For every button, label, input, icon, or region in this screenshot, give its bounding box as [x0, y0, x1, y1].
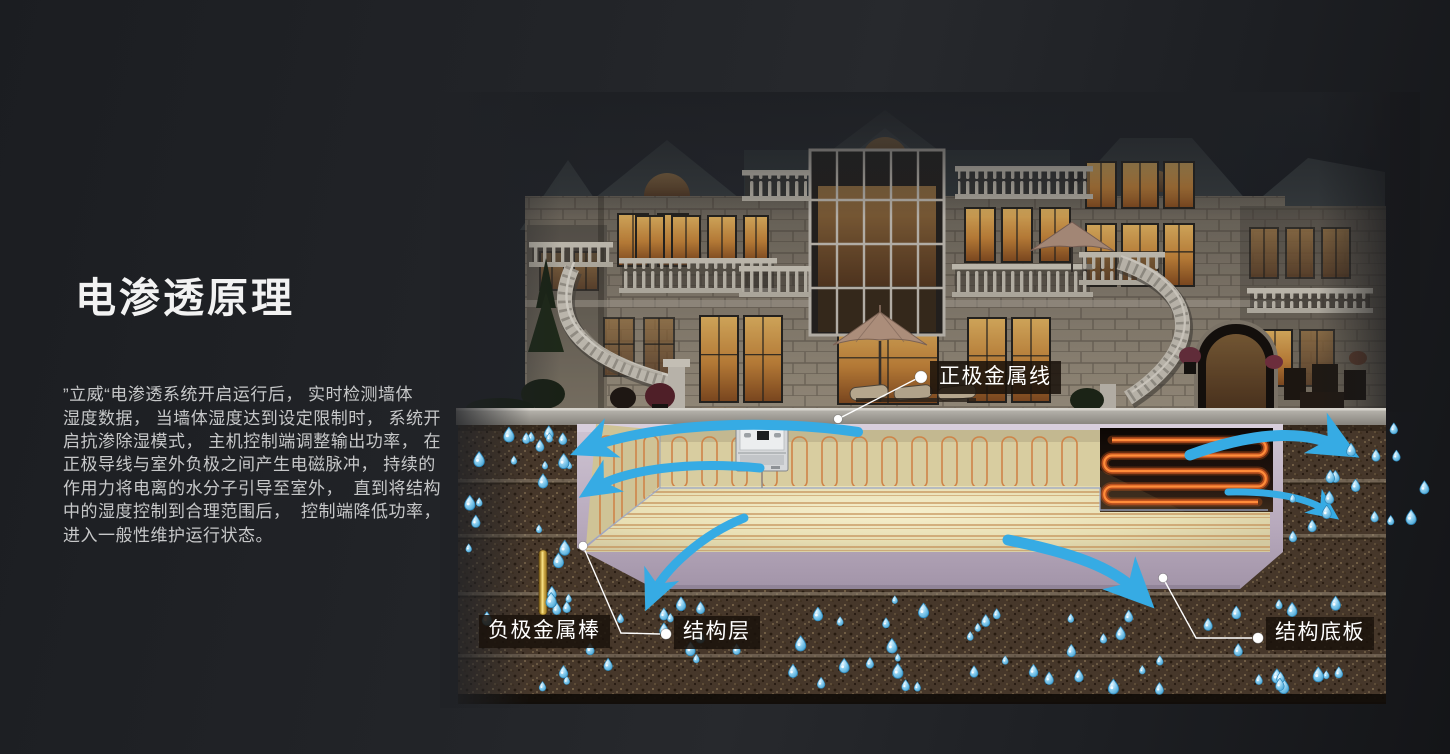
marker-dot-layer-label — [661, 629, 672, 640]
intro-line: 进入一般性维护运行状态。 — [63, 524, 423, 547]
intro-paragraph: ”立威“电渗透系统开启运行后， 实时检测墙体 湿度数据， 当墙体湿度达到设定限制… — [63, 383, 423, 547]
intro-line: 中的湿度控制到合理范围后， 控制端降低功率， — [63, 500, 423, 523]
label-positive-metal-wire: 正极金属线 — [930, 361, 1061, 394]
intro-line: 正极导线与室外负极之间产生电磁脉冲， 持续的 — [63, 453, 423, 476]
negative-electrode-rod — [539, 550, 547, 615]
intro-line: ”立威“电渗透系统开启运行后， 实时检测墙体 — [63, 383, 423, 406]
intro-line: 作用力将电离的水分子引导至室外， 直到将结构 — [63, 477, 423, 500]
marker-dot-slab-edge — [1158, 573, 1167, 582]
marker-dot-positive-label — [915, 371, 927, 383]
ground-curb — [456, 408, 1386, 425]
intro-line: 湿度数据， 当墙体湿度达到设定限制时， 系统开 — [63, 407, 423, 430]
marker-dot-structure-corner — [578, 541, 587, 550]
label-negative-metal-rod: 负极金属棒 — [479, 615, 610, 648]
marker-dot-slab-label — [1253, 633, 1264, 644]
label-structure-slab: 结构底板 — [1266, 617, 1374, 650]
text-panel: 电渗透原理 ”立威“电渗透系统开启运行后， 实时检测墙体 湿度数据， 当墙体湿度… — [63, 276, 423, 547]
label-structure-layer: 结构层 — [674, 616, 760, 649]
page-title: 电渗透原理 — [75, 276, 423, 321]
marker-dot-wall — [834, 415, 843, 424]
intro-line: 启抗渗除湿模式， 主机控制端调整输出功率， 在 — [63, 430, 423, 453]
page: 电渗透原理 ”立威“电渗透系统开启运行后， 实时检测墙体 湿度数据， 当墙体湿度… — [0, 0, 1450, 754]
